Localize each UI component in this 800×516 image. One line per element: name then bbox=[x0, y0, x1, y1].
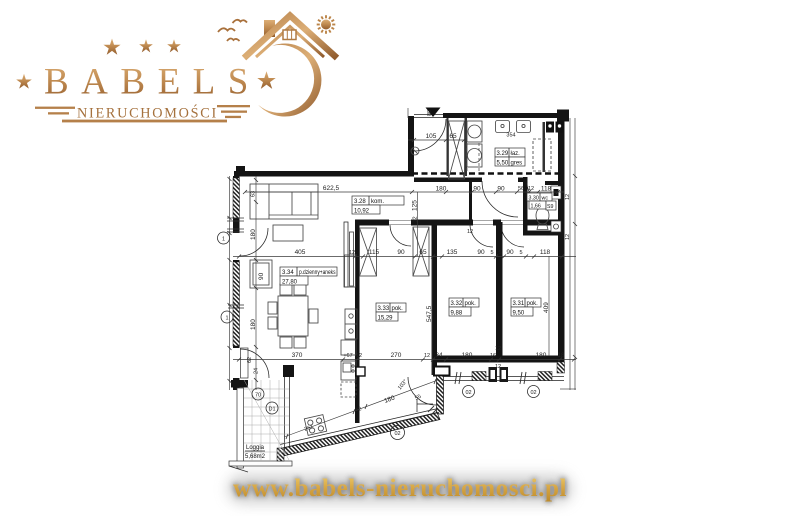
svg-text:02: 02 bbox=[465, 390, 471, 396]
svg-text:65: 65 bbox=[419, 249, 427, 256]
svg-text:NIERUCHOMOŚCI: NIERUCHOMOŚCI bbox=[77, 105, 218, 122]
svg-text:1: 1 bbox=[225, 316, 228, 322]
svg-text:1: 1 bbox=[222, 237, 225, 243]
svg-text:D1: D1 bbox=[268, 407, 275, 413]
svg-text:12: 12 bbox=[495, 364, 501, 370]
svg-text:pok.: pok. bbox=[527, 301, 539, 307]
svg-text:180: 180 bbox=[250, 319, 257, 330]
svg-text:115: 115 bbox=[369, 249, 380, 256]
svg-text:90: 90 bbox=[506, 249, 514, 256]
svg-text:354: 354 bbox=[506, 133, 515, 139]
svg-text:p.dzienny+aneks: p.dzienny+aneks bbox=[299, 270, 336, 276]
svg-text:12: 12 bbox=[424, 353, 430, 359]
svg-text:90: 90 bbox=[473, 186, 481, 193]
svg-text:12: 12 bbox=[356, 353, 362, 359]
svg-text:S9: S9 bbox=[547, 204, 554, 210]
svg-text:370: 370 bbox=[292, 352, 303, 359]
svg-text:pok.: pok. bbox=[392, 306, 404, 312]
svg-text:wc: wc bbox=[542, 196, 549, 202]
svg-text:63: 63 bbox=[251, 191, 257, 197]
svg-text:18: 18 bbox=[557, 352, 565, 359]
svg-text:90: 90 bbox=[397, 249, 405, 256]
svg-text:3.34: 3.34 bbox=[282, 270, 294, 276]
svg-text:70: 70 bbox=[255, 393, 261, 399]
svg-text:10,92: 10,92 bbox=[354, 209, 370, 215]
svg-text:15,29: 15,29 bbox=[378, 316, 394, 322]
svg-text:BABELS: BABELS bbox=[44, 62, 261, 103]
svg-text:1,66: 1,66 bbox=[531, 204, 541, 210]
svg-text:02: 02 bbox=[394, 431, 400, 437]
svg-text:405: 405 bbox=[295, 249, 306, 256]
svg-text:3.29: 3.29 bbox=[497, 151, 509, 157]
svg-text:24: 24 bbox=[254, 368, 260, 374]
svg-text:9,88: 9,88 bbox=[451, 311, 463, 317]
svg-text:3.30: 3.30 bbox=[529, 196, 539, 202]
svg-text:270: 270 bbox=[391, 352, 402, 359]
svg-text:34: 34 bbox=[435, 352, 443, 359]
svg-text:65: 65 bbox=[449, 133, 457, 140]
svg-text:90: 90 bbox=[477, 249, 485, 256]
svg-text:12: 12 bbox=[349, 250, 355, 256]
svg-text:3.32: 3.32 bbox=[451, 301, 463, 307]
svg-text:12: 12 bbox=[565, 194, 571, 200]
svg-text:kom.: kom. bbox=[371, 199, 384, 205]
svg-text:12: 12 bbox=[528, 186, 534, 192]
svg-text:16: 16 bbox=[490, 353, 496, 359]
svg-text:gres: gres bbox=[511, 161, 523, 167]
svg-text:90: 90 bbox=[258, 272, 265, 280]
svg-text:3.28: 3.28 bbox=[354, 199, 366, 205]
svg-text:547,5: 547,5 bbox=[426, 305, 433, 322]
svg-text:135: 135 bbox=[447, 249, 458, 256]
svg-text:56: 56 bbox=[518, 186, 524, 192]
svg-text:5: 5 bbox=[519, 250, 522, 256]
svg-text:5: 5 bbox=[498, 250, 501, 256]
svg-text:pok.: pok. bbox=[465, 301, 477, 307]
svg-text:180: 180 bbox=[436, 186, 447, 193]
svg-text:5,68m2: 5,68m2 bbox=[245, 454, 266, 460]
svg-text:02: 02 bbox=[530, 390, 536, 396]
svg-text:3.33: 3.33 bbox=[378, 306, 390, 312]
svg-text:409: 409 bbox=[543, 302, 550, 313]
svg-text:9,50: 9,50 bbox=[513, 311, 525, 317]
svg-text:5,50: 5,50 bbox=[497, 161, 509, 167]
svg-text:12: 12 bbox=[565, 234, 571, 240]
svg-text:12: 12 bbox=[495, 346, 501, 352]
svg-text:125: 125 bbox=[412, 200, 419, 211]
svg-text:łaz.: łaz. bbox=[511, 151, 521, 157]
svg-text:+67: +67 bbox=[343, 353, 352, 359]
svg-text:27,80: 27,80 bbox=[282, 280, 298, 286]
svg-text:105: 105 bbox=[426, 133, 437, 140]
svg-text:622,5: 622,5 bbox=[323, 185, 340, 192]
svg-text:12: 12 bbox=[467, 229, 473, 235]
svg-text:www.babels-nieruchomosci.pl: www.babels-nieruchomosci.pl bbox=[233, 475, 567, 502]
svg-text:5: 5 bbox=[490, 250, 493, 256]
svg-text:118: 118 bbox=[541, 186, 552, 193]
svg-text:118: 118 bbox=[540, 249, 551, 256]
svg-text:180: 180 bbox=[462, 352, 473, 359]
svg-text:62: 62 bbox=[247, 357, 253, 363]
svg-text:90: 90 bbox=[497, 186, 505, 193]
svg-text:12: 12 bbox=[413, 216, 419, 222]
svg-text:80: 80 bbox=[427, 110, 433, 116]
svg-text:3.31: 3.31 bbox=[513, 301, 525, 307]
svg-text:Loggia: Loggia bbox=[246, 445, 265, 451]
svg-text:180: 180 bbox=[250, 229, 257, 240]
svg-text:180: 180 bbox=[536, 352, 547, 359]
